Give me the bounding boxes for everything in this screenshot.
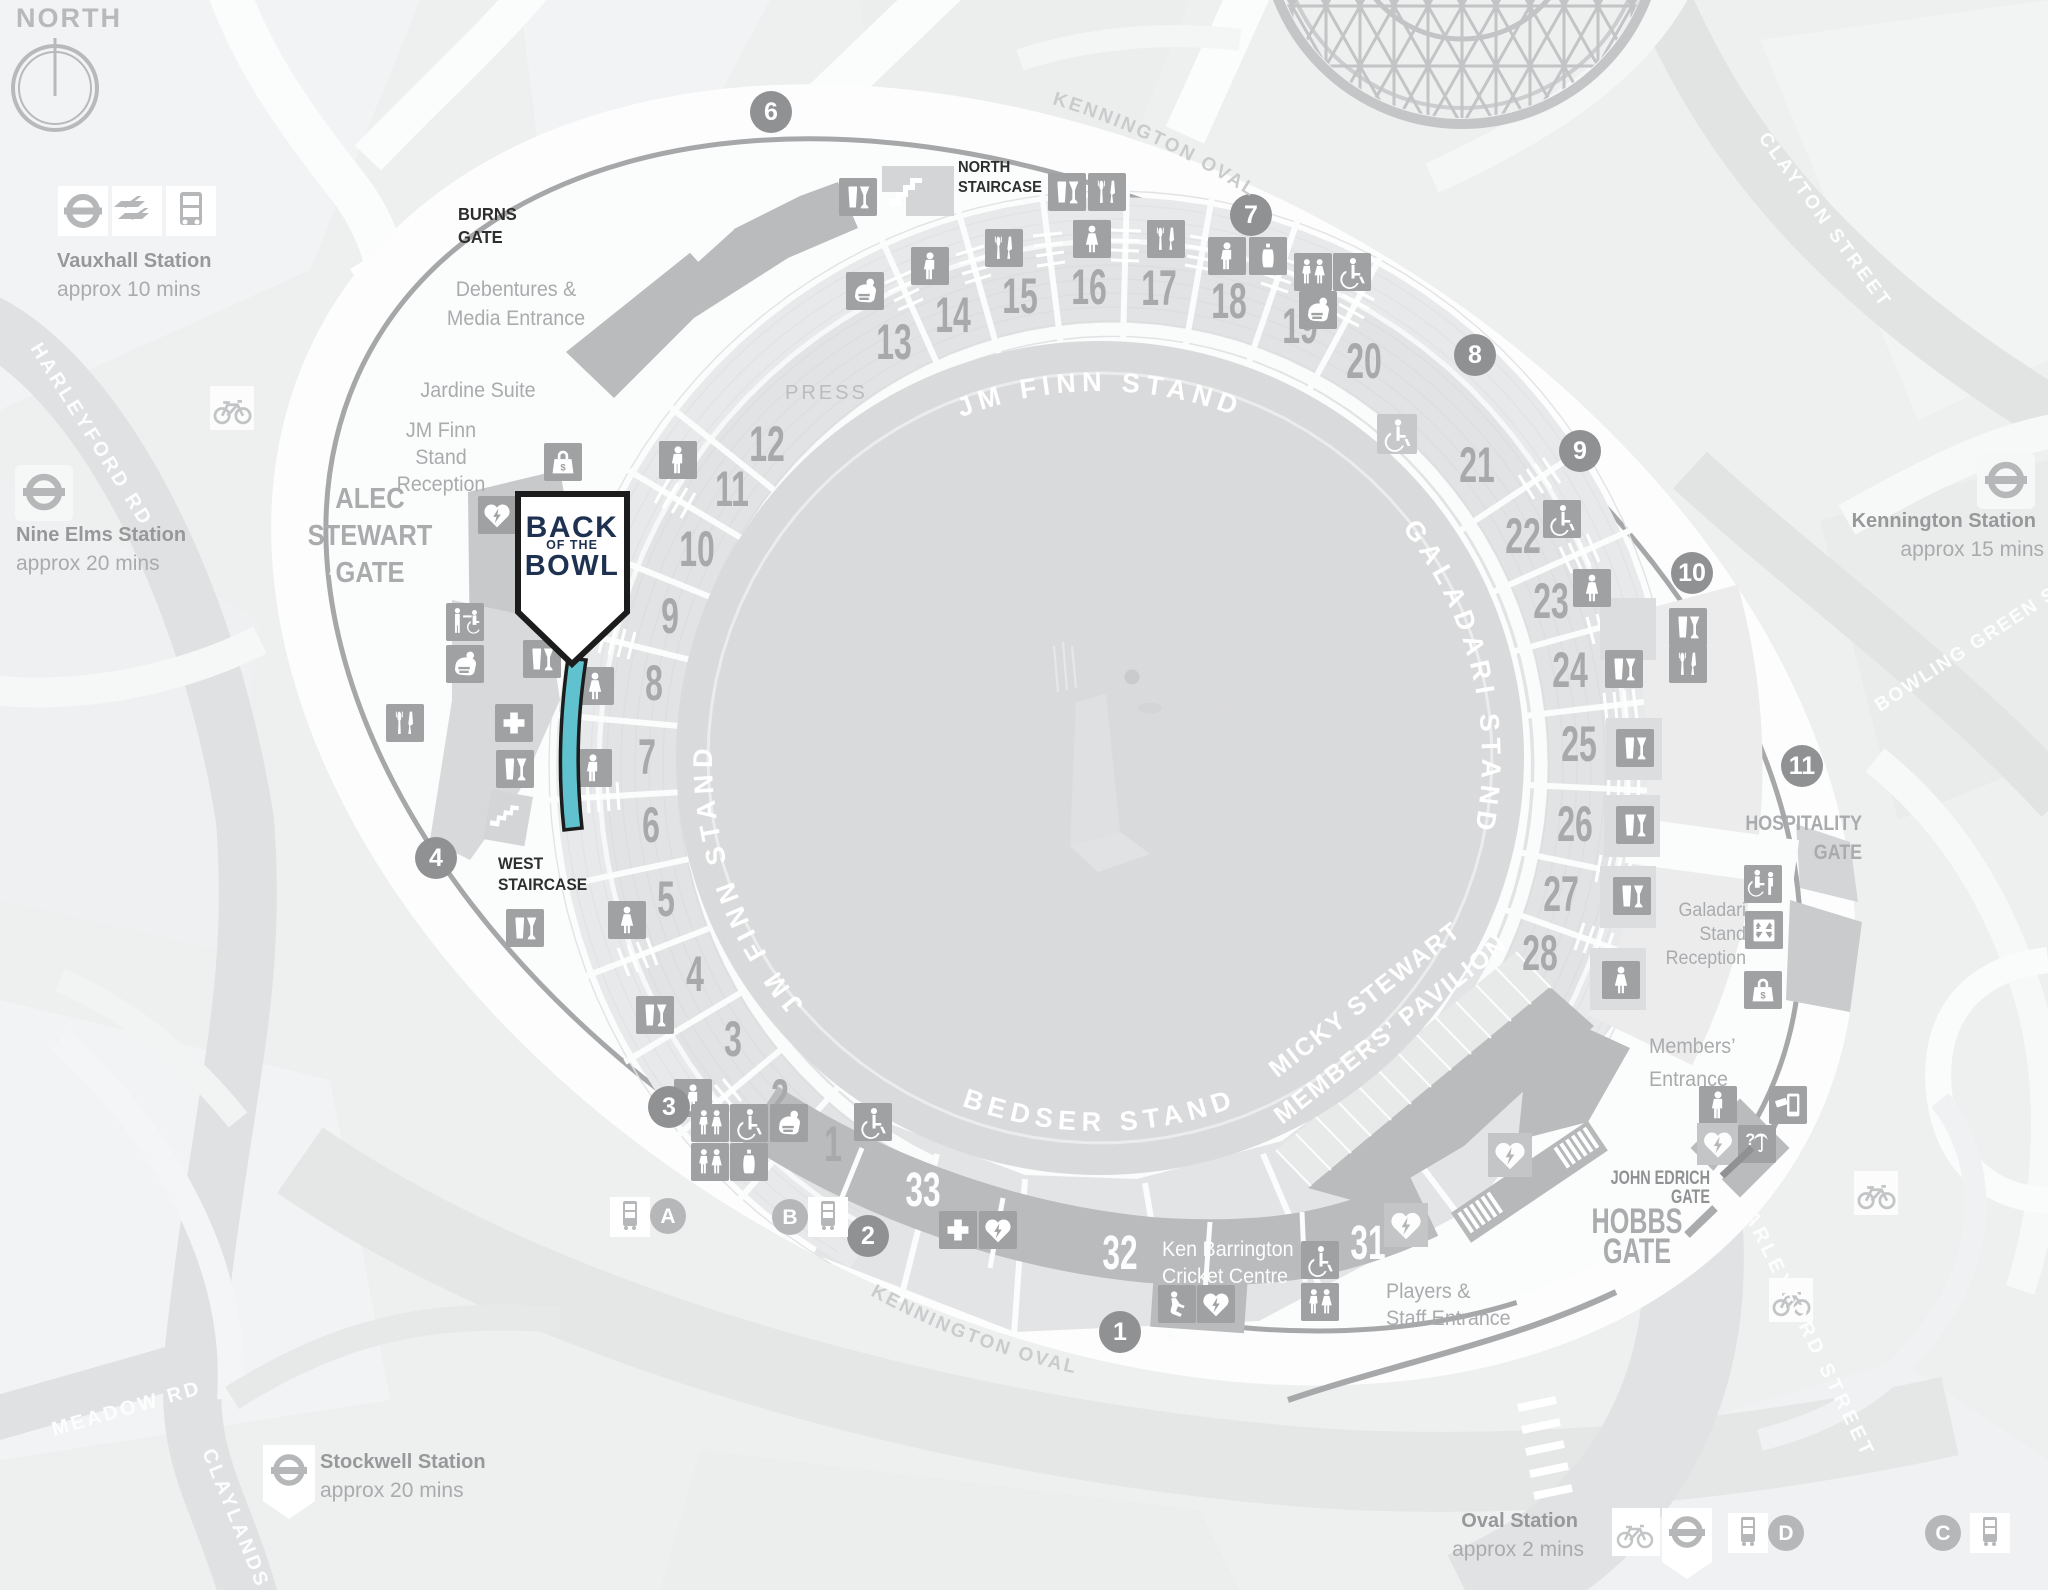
svg-text:STAIRCASE: STAIRCASE: [498, 875, 587, 894]
svg-text:8: 8: [645, 655, 663, 711]
svg-text:Galadari: Galadari: [1679, 898, 1746, 920]
svg-text:C: C: [1935, 1522, 1950, 1545]
svg-text:approx 10 mins: approx 10 mins: [57, 278, 201, 301]
svg-text:23: 23: [1533, 573, 1569, 629]
svg-text:PRESS: PRESS: [785, 382, 868, 404]
svg-text:4: 4: [686, 946, 704, 1002]
svg-text:20: 20: [1346, 333, 1382, 389]
svg-text:25: 25: [1561, 716, 1597, 772]
svg-text:7: 7: [1244, 201, 1258, 229]
svg-text:STAIRCASE: STAIRCASE: [958, 178, 1042, 196]
svg-text:Stand: Stand: [1699, 922, 1746, 944]
svg-text:Players &: Players &: [1386, 1280, 1471, 1303]
svg-text:10: 10: [1678, 559, 1706, 587]
svg-text:3: 3: [662, 1093, 676, 1121]
svg-text:Vauxhall Station: Vauxhall Station: [57, 250, 211, 272]
svg-text:6: 6: [642, 797, 660, 853]
svg-text:Kennington Station: Kennington Station: [1852, 510, 2036, 532]
svg-text:24: 24: [1552, 642, 1588, 698]
svg-text:Reception: Reception: [397, 473, 486, 496]
svg-text:28: 28: [1522, 925, 1558, 981]
svg-text:Debentures &: Debentures &: [456, 278, 577, 301]
svg-text:NORTH: NORTH: [958, 158, 1010, 176]
svg-text:8: 8: [1468, 341, 1482, 369]
svg-text:Stockwell Station: Stockwell Station: [320, 1451, 486, 1473]
svg-text:GATE: GATE: [1603, 1232, 1671, 1271]
svg-text:Members’: Members’: [1649, 1035, 1736, 1058]
svg-text:7: 7: [638, 729, 656, 785]
svg-text:31: 31: [1350, 1215, 1385, 1269]
svg-text:9: 9: [661, 588, 679, 644]
svg-text:16: 16: [1071, 259, 1107, 315]
svg-text:6: 6: [764, 98, 778, 126]
svg-text:3: 3: [724, 1011, 742, 1067]
svg-text:HOSPITALITY: HOSPITALITY: [1745, 812, 1862, 836]
svg-text:NORTH: NORTH: [16, 3, 122, 33]
svg-text:Nine Elms Station: Nine Elms Station: [16, 524, 186, 546]
svg-text:B: B: [782, 1206, 797, 1229]
svg-text:JM Finn: JM Finn: [406, 419, 476, 442]
svg-text:D: D: [1778, 1522, 1793, 1545]
svg-text:approx 2 mins: approx 2 mins: [1452, 1538, 1584, 1561]
svg-text:9: 9: [1573, 437, 1587, 465]
svg-text:10: 10: [679, 521, 715, 577]
svg-text:Reception: Reception: [1666, 946, 1746, 968]
svg-text:ALEC: ALEC: [335, 481, 404, 514]
svg-text:BOWL: BOWL: [525, 550, 620, 582]
svg-text:11: 11: [1789, 752, 1816, 780]
svg-text:Staff Entrance: Staff Entrance: [1386, 1307, 1511, 1330]
svg-text:GATE: GATE: [1814, 841, 1862, 865]
svg-text:Media Entrance: Media Entrance: [447, 307, 585, 330]
svg-text:13: 13: [876, 314, 912, 370]
svg-text:GATE: GATE: [458, 226, 503, 247]
svg-text:1: 1: [824, 1116, 842, 1172]
svg-text:Ken Barrington: Ken Barrington: [1162, 1238, 1294, 1261]
svg-text:Oval Station: Oval Station: [1461, 1510, 1578, 1532]
svg-text:Jardine Suite: Jardine Suite: [420, 379, 535, 402]
svg-text:32: 32: [1102, 1225, 1137, 1279]
svg-text:BURNS: BURNS: [458, 203, 517, 224]
svg-text:18: 18: [1211, 273, 1247, 329]
svg-text:GATE: GATE: [336, 555, 405, 588]
svg-text:4: 4: [429, 844, 443, 872]
svg-text:approx 15 mins: approx 15 mins: [1900, 538, 2044, 561]
svg-text:11: 11: [715, 461, 749, 517]
svg-text:14: 14: [935, 287, 971, 343]
svg-text:5: 5: [657, 871, 675, 927]
svg-text:WEST: WEST: [498, 854, 543, 873]
svg-text:22: 22: [1505, 508, 1541, 564]
svg-text:12: 12: [749, 416, 785, 472]
svg-text:33: 33: [905, 1162, 940, 1216]
svg-text:27: 27: [1543, 866, 1579, 922]
svg-text:15: 15: [1002, 268, 1038, 324]
svg-text:A: A: [660, 1205, 675, 1228]
svg-text:17: 17: [1141, 260, 1177, 316]
svg-text:Cricket Centre: Cricket Centre: [1162, 1265, 1288, 1288]
svg-text:21: 21: [1459, 437, 1495, 493]
svg-text:Stand: Stand: [415, 446, 467, 469]
svg-text:1: 1: [1113, 1318, 1127, 1346]
svg-text:2: 2: [861, 1222, 875, 1250]
svg-text:approx 20 mins: approx 20 mins: [320, 1479, 464, 1502]
svg-text:Entrance: Entrance: [1649, 1068, 1728, 1091]
svg-text:26: 26: [1557, 796, 1593, 852]
svg-text:approx 20 mins: approx 20 mins: [16, 552, 160, 575]
svg-text:STEWART: STEWART: [308, 518, 433, 551]
